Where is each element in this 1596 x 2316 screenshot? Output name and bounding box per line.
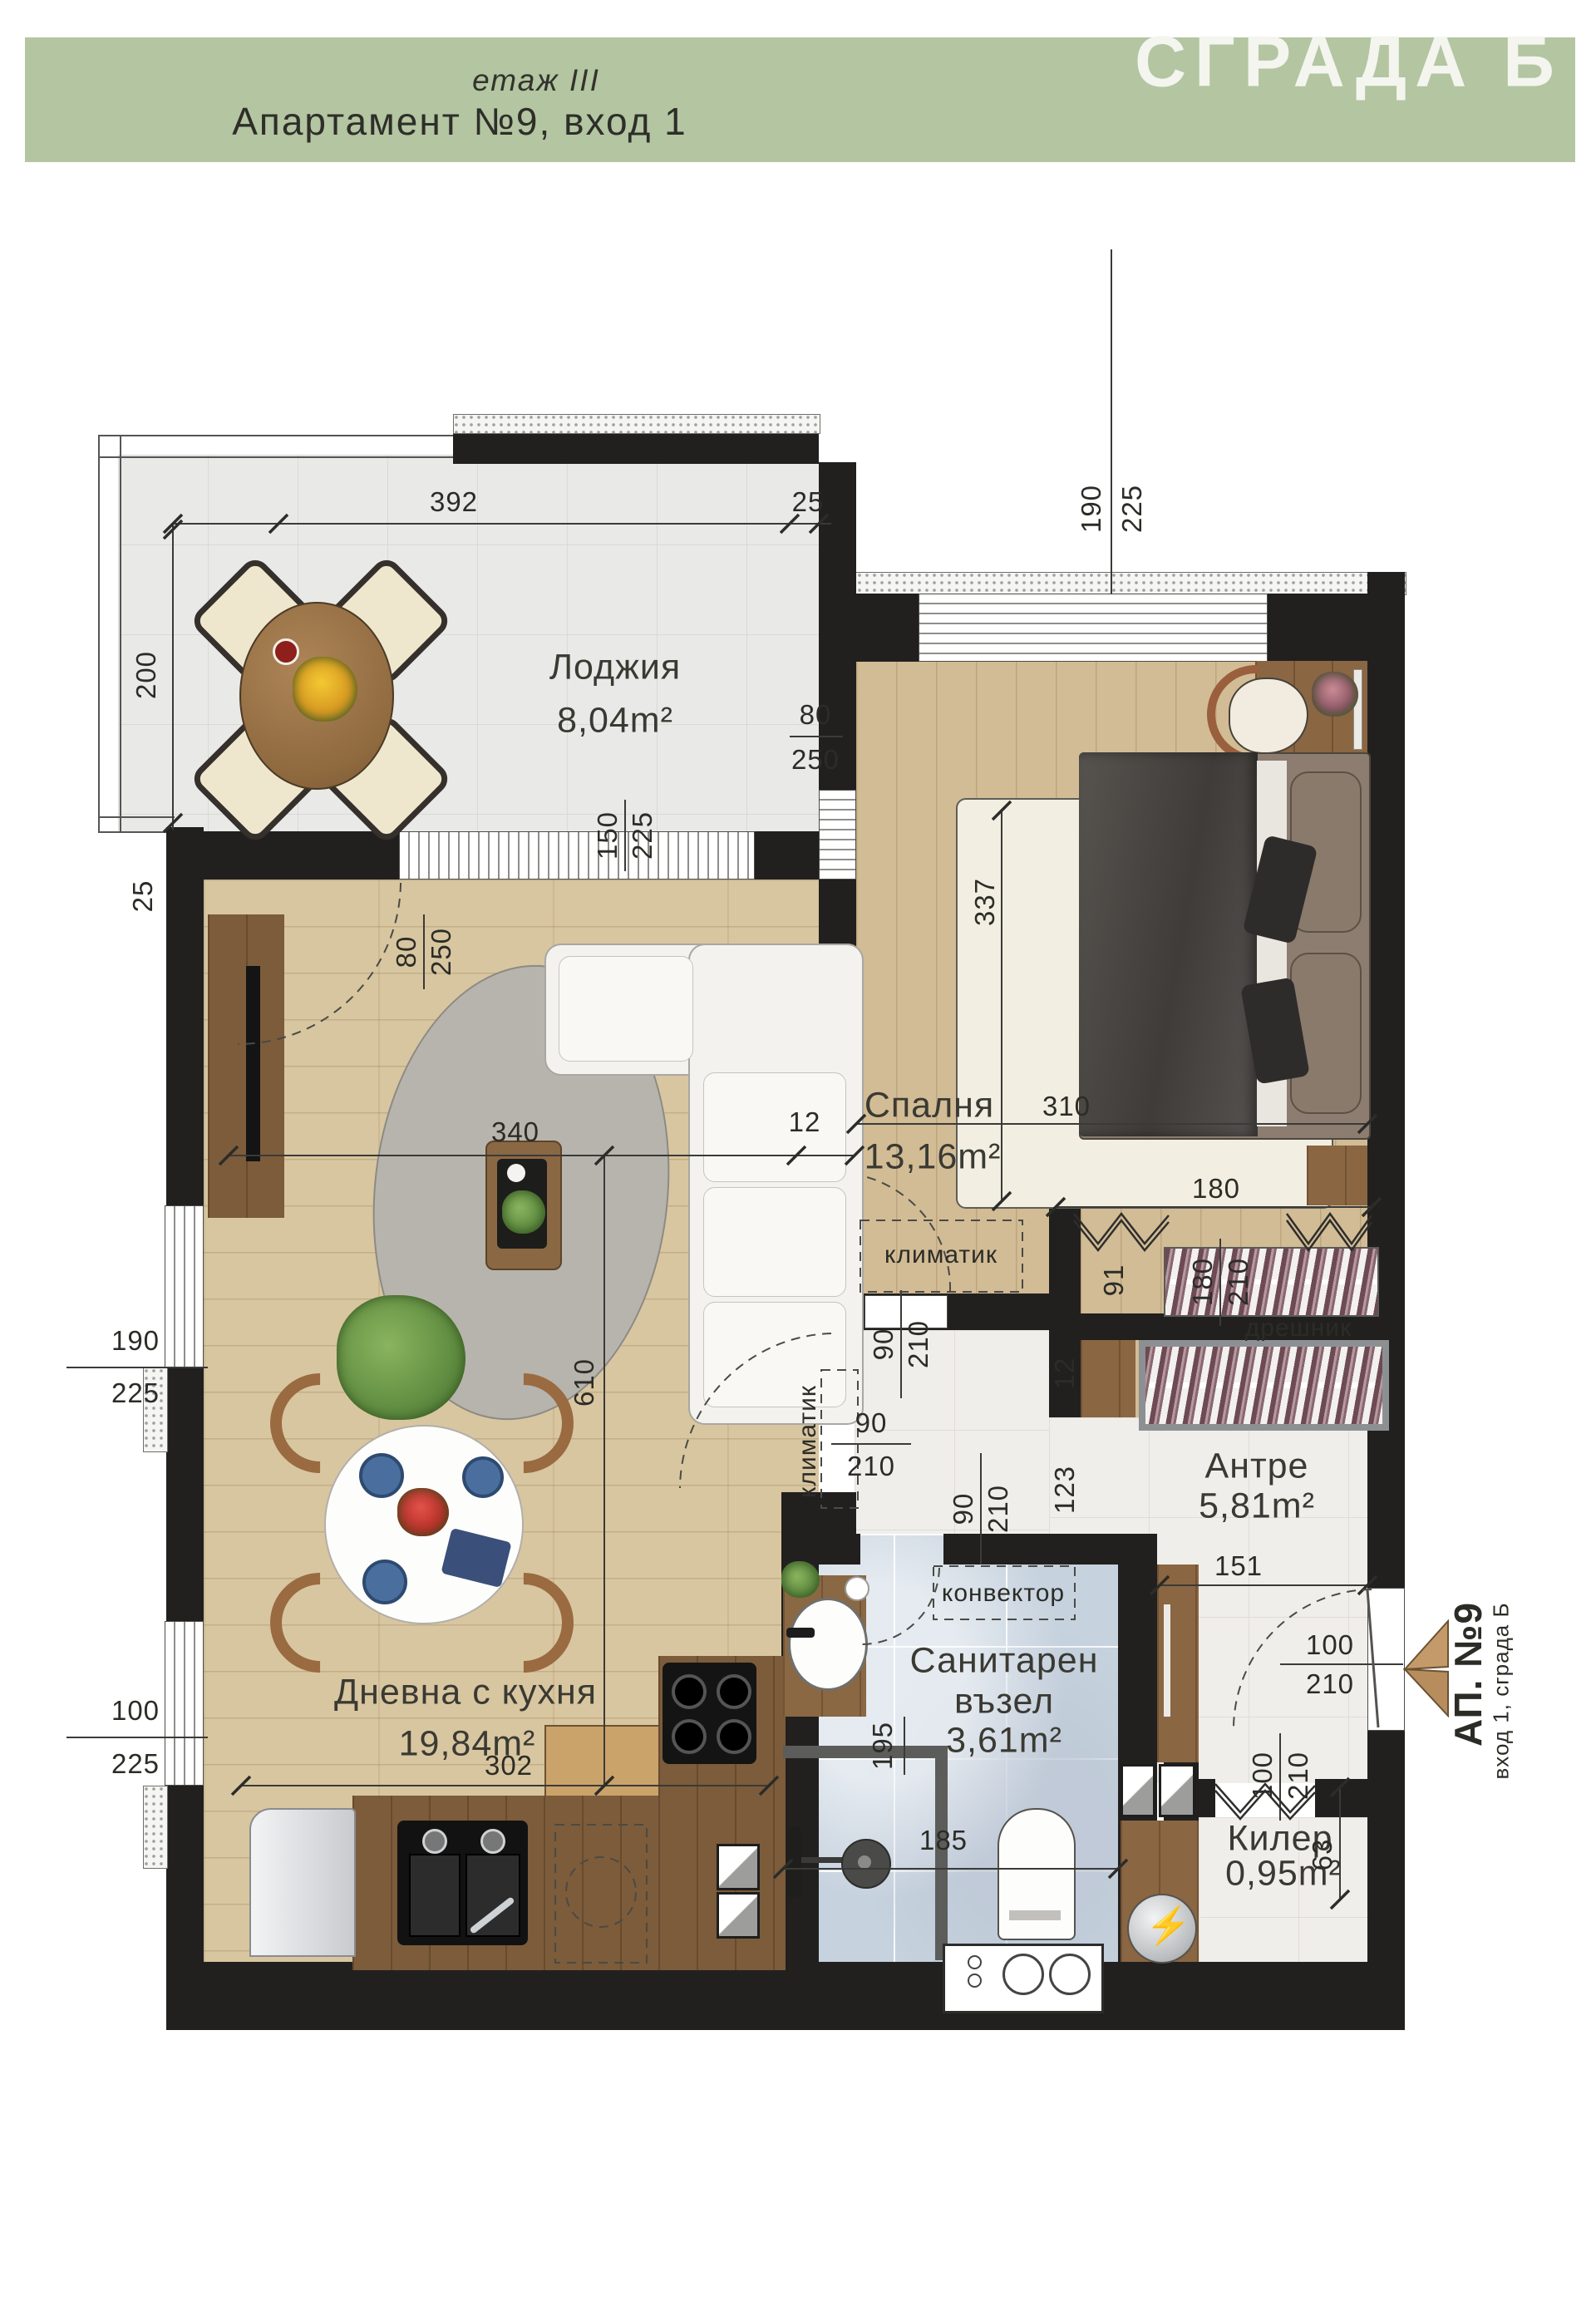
dim-bedroom-width: 310 (1042, 1091, 1091, 1122)
dim-loggia-width: 392 (430, 486, 478, 518)
dim-bed-door-w: 90 (868, 1328, 899, 1361)
ac-bedroom-label: климатик (884, 1241, 997, 1269)
bathroom-name-1: Санитарен (910, 1641, 1099, 1682)
floor-plan-page: етаж III Апартамент №9, вход 1 СГРАДА Б (0, 0, 1596, 2316)
dim-wardrobe-door-h: 210 (1223, 1258, 1254, 1306)
dim-left-window1-w: 190 (111, 1325, 160, 1357)
dim-left-window2-h: 225 (111, 1748, 160, 1780)
living-name: Дневна с кухня (334, 1673, 597, 1713)
wardrobe-label: дрешник (1245, 1314, 1352, 1343)
dim-living-width: 340 (491, 1116, 539, 1148)
entrance-sub-label: вход 1, сграда Б (1489, 1602, 1515, 1779)
hallway-name: Антре (1205, 1446, 1309, 1487)
dim-loggia-wall-top: 25 (792, 486, 825, 518)
dim-storage-door-w: 100 (1247, 1752, 1278, 1800)
dimension-lines (66, 249, 1403, 1900)
dim-entry-door-h: 210 (1306, 1668, 1354, 1700)
dim-left-window2-w: 100 (111, 1695, 160, 1727)
dim-hall-151: 151 (1214, 1550, 1263, 1582)
bathroom-area: 3,61m² (946, 1721, 1062, 1762)
dim-wall-12b: 12 (1049, 1358, 1081, 1390)
dim-bedroom-window-w: 190 (1076, 485, 1107, 533)
dim-entry-door-w: 100 (1306, 1629, 1354, 1661)
dim-living-length: 610 (569, 1358, 600, 1407)
bedroom-area: 13,16m² (864, 1137, 1002, 1178)
entrance-door-leaf (1367, 1589, 1378, 1727)
dim-bedroom-window-h: 225 (1116, 485, 1148, 533)
dim-shelf-91: 91 (1098, 1264, 1130, 1297)
dim-loggia-wall-left: 25 (127, 880, 159, 913)
dim-bath-185: 185 (919, 1825, 968, 1856)
dim-loggia-window-w: 150 (592, 811, 623, 860)
dim-wall-123: 123 (1049, 1466, 1081, 1514)
dim-storage-63: 63 (1307, 1839, 1338, 1871)
dim-storage-door-h: 210 (1283, 1752, 1314, 1800)
bathroom-name-2: възел (954, 1682, 1054, 1722)
dim-liv-door-w: 90 (855, 1407, 888, 1439)
loggia-area: 8,04m² (557, 701, 673, 742)
dim-wall-12: 12 (789, 1106, 821, 1138)
dim-bath-door-h: 210 (983, 1485, 1014, 1533)
dim-kitchen-302: 302 (485, 1750, 533, 1781)
dim-corner-window-w: 80 (800, 699, 832, 731)
entrance-apartment-label: АП. №9 (1446, 1602, 1490, 1747)
dim-bath-door-w: 90 (948, 1493, 979, 1525)
dim-liv-door-h: 210 (847, 1451, 895, 1482)
dim-terrace-window-w: 80 (391, 936, 422, 968)
dim-wardrobe-door-w: 180 (1187, 1258, 1219, 1306)
dim-bedroom-length: 337 (969, 878, 1001, 926)
convector-label: конвектор (942, 1579, 1065, 1608)
bedroom-name: Спалня (864, 1086, 994, 1126)
annotation-layer (0, 0, 1596, 2316)
ac-living-label: климатик (794, 1385, 822, 1498)
dim-loggia-depth: 200 (131, 651, 162, 699)
dim-loggia-window-h: 225 (627, 811, 658, 860)
loggia-name: Лоджия (549, 648, 681, 688)
hallway-area: 5,81m² (1199, 1486, 1315, 1527)
dim-terrace-window-h: 250 (426, 928, 457, 976)
dim-bed-door-h: 210 (903, 1320, 934, 1368)
dim-left-window1-h: 225 (111, 1377, 160, 1409)
dim-corner-window-h: 250 (791, 744, 840, 776)
dim-wardrobe-width: 180 (1192, 1173, 1240, 1205)
dim-bath-195: 195 (867, 1722, 899, 1770)
